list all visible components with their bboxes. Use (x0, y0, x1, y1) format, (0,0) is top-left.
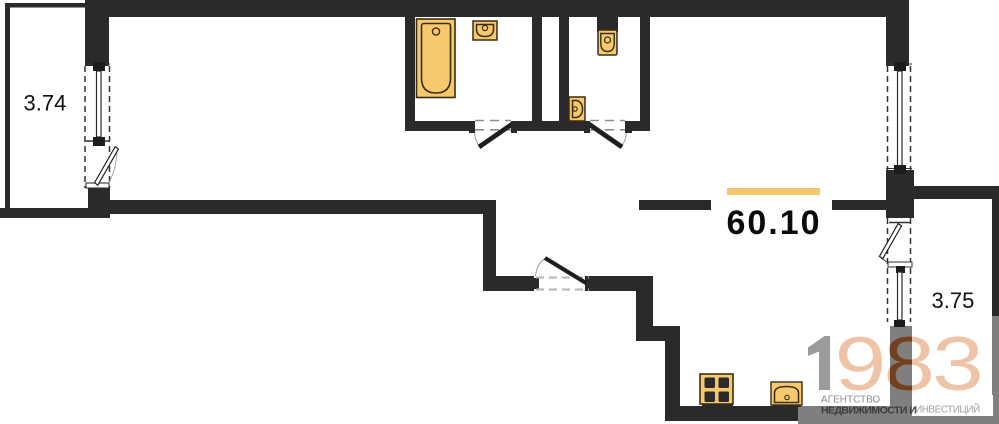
svg-text:3.75: 3.75 (932, 288, 975, 313)
svg-text:ИНВЕСТИЦИЙ: ИНВЕСТИЦИЙ (915, 403, 980, 416)
svg-text:НЕДВИЖИМОСТИ И: НЕДВИЖИМОСТИ И (821, 405, 916, 417)
svg-text:60.10: 60.10 (726, 204, 821, 242)
svg-text:3.74: 3.74 (24, 91, 67, 116)
